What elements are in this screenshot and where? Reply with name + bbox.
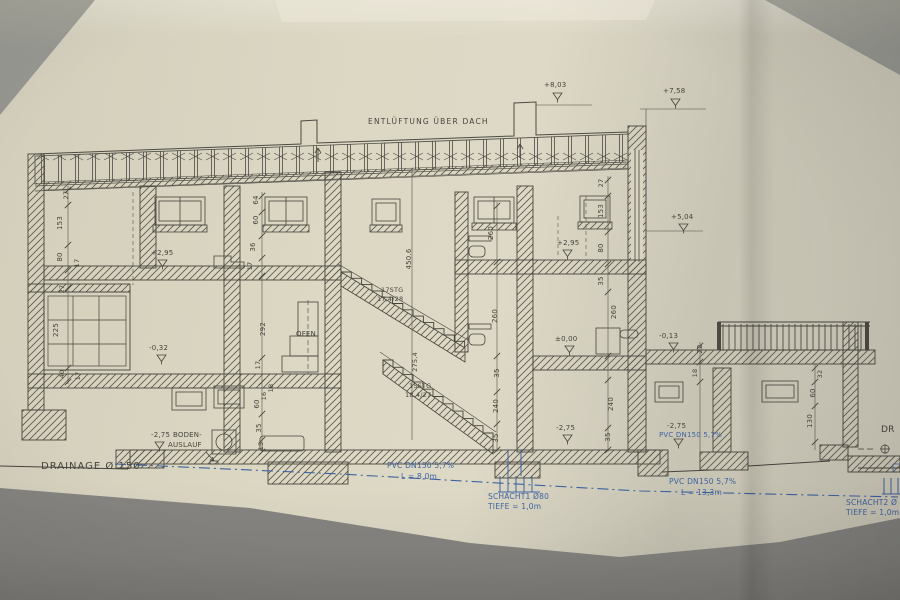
dim-label: 17 [74, 358, 82, 394]
dim-label: 27 [58, 271, 66, 307]
pipe-note: PVC DN150 5,7% [669, 478, 736, 486]
section-drawing [0, 0, 900, 600]
dim-label: 292 [259, 311, 267, 347]
dim-label: 35 [604, 419, 612, 455]
dim-label: 40 [58, 356, 66, 392]
roof-vent-note: ENTLÜFTUNG ÜBER DACH [368, 118, 489, 126]
dim-label: 80 [597, 230, 605, 266]
dim-label: 130 [806, 403, 814, 439]
photographed-blueprint: ENTLÜFTUNG ÜBER DACH +8,03 +7,58 +5,04 +… [0, 0, 900, 600]
floor-drain-note: BODEN- [173, 431, 202, 439]
dim-label: 35 [493, 355, 501, 391]
drainage-note-cut: DR [881, 426, 895, 434]
dim-label: 275,4 [411, 344, 419, 380]
right-wall-glazing [631, 150, 643, 262]
room-label: OFEN [296, 330, 316, 338]
dim-label: 153 [56, 205, 64, 241]
dim-label: 15 [257, 428, 265, 464]
shaft-note: TIEFE = 1,0m [846, 509, 899, 517]
pipe-note: PVC DN150 5,7% [659, 431, 722, 439]
dim-label: 17 [73, 245, 81, 281]
level-annotation: -0,32 [149, 344, 168, 352]
dim-label: 260 [610, 294, 618, 330]
level-annotation: +7,58 [663, 87, 685, 95]
dim-label: 80 [56, 239, 64, 275]
dim-label: 18 [267, 370, 275, 406]
level-annotation: ±0,00 [555, 335, 577, 343]
dim-label: 18 [691, 355, 699, 391]
shaft-note: SCHACHT2 Ø [846, 499, 897, 507]
level-annotation: -2,75 [151, 431, 170, 439]
stair-annotation: 17,4/28 [377, 295, 403, 303]
stair-annotation: 15STG [409, 382, 431, 390]
stair-annotation: 18,4/27 [405, 391, 431, 399]
dim-label: 260 [487, 215, 495, 251]
level-annotation: +2,95 [557, 239, 579, 247]
dim-label: 17 [246, 248, 254, 284]
level-annotation: +5,04 [671, 213, 693, 221]
pipe-note: L = 13,3m [681, 489, 722, 497]
floor-drain-note: AUSLAUF [168, 441, 202, 449]
level-annotation: -0,13 [659, 332, 678, 340]
dim-label: 260 [491, 298, 499, 334]
pipe-note: PVC DN150 5,7% [387, 462, 454, 470]
dim-label: 240 [492, 388, 500, 424]
dim-label: 32 [816, 356, 824, 392]
dim-label: 225 [52, 312, 60, 348]
dim-label: 153 [597, 193, 605, 229]
upper-windows [153, 196, 612, 232]
dim-label: 35 [492, 420, 500, 456]
level-annotation: +8,03 [544, 81, 566, 89]
level-annotation: -2,75 [667, 422, 686, 430]
shaft-note: SCHACHT1 Ø80 [488, 493, 549, 501]
dim-label: 240 [607, 386, 615, 422]
drainage-note: DRAINAGE Ø 150 [41, 463, 141, 471]
dim-label: 35 [597, 263, 605, 299]
level-annotation: -2,75 [556, 424, 575, 432]
paper-highlight [275, 0, 655, 22]
stair-annotation: 17STG [381, 286, 403, 294]
terrace-railing [717, 322, 870, 350]
shaft-note: TIEFE = 1,0m [488, 503, 541, 511]
dim-label: 16 [260, 378, 268, 414]
dim-label: 450.6 [405, 241, 413, 277]
level-annotation: +2,95 [151, 249, 173, 257]
pipe-note: L = 8,0m [401, 473, 437, 481]
